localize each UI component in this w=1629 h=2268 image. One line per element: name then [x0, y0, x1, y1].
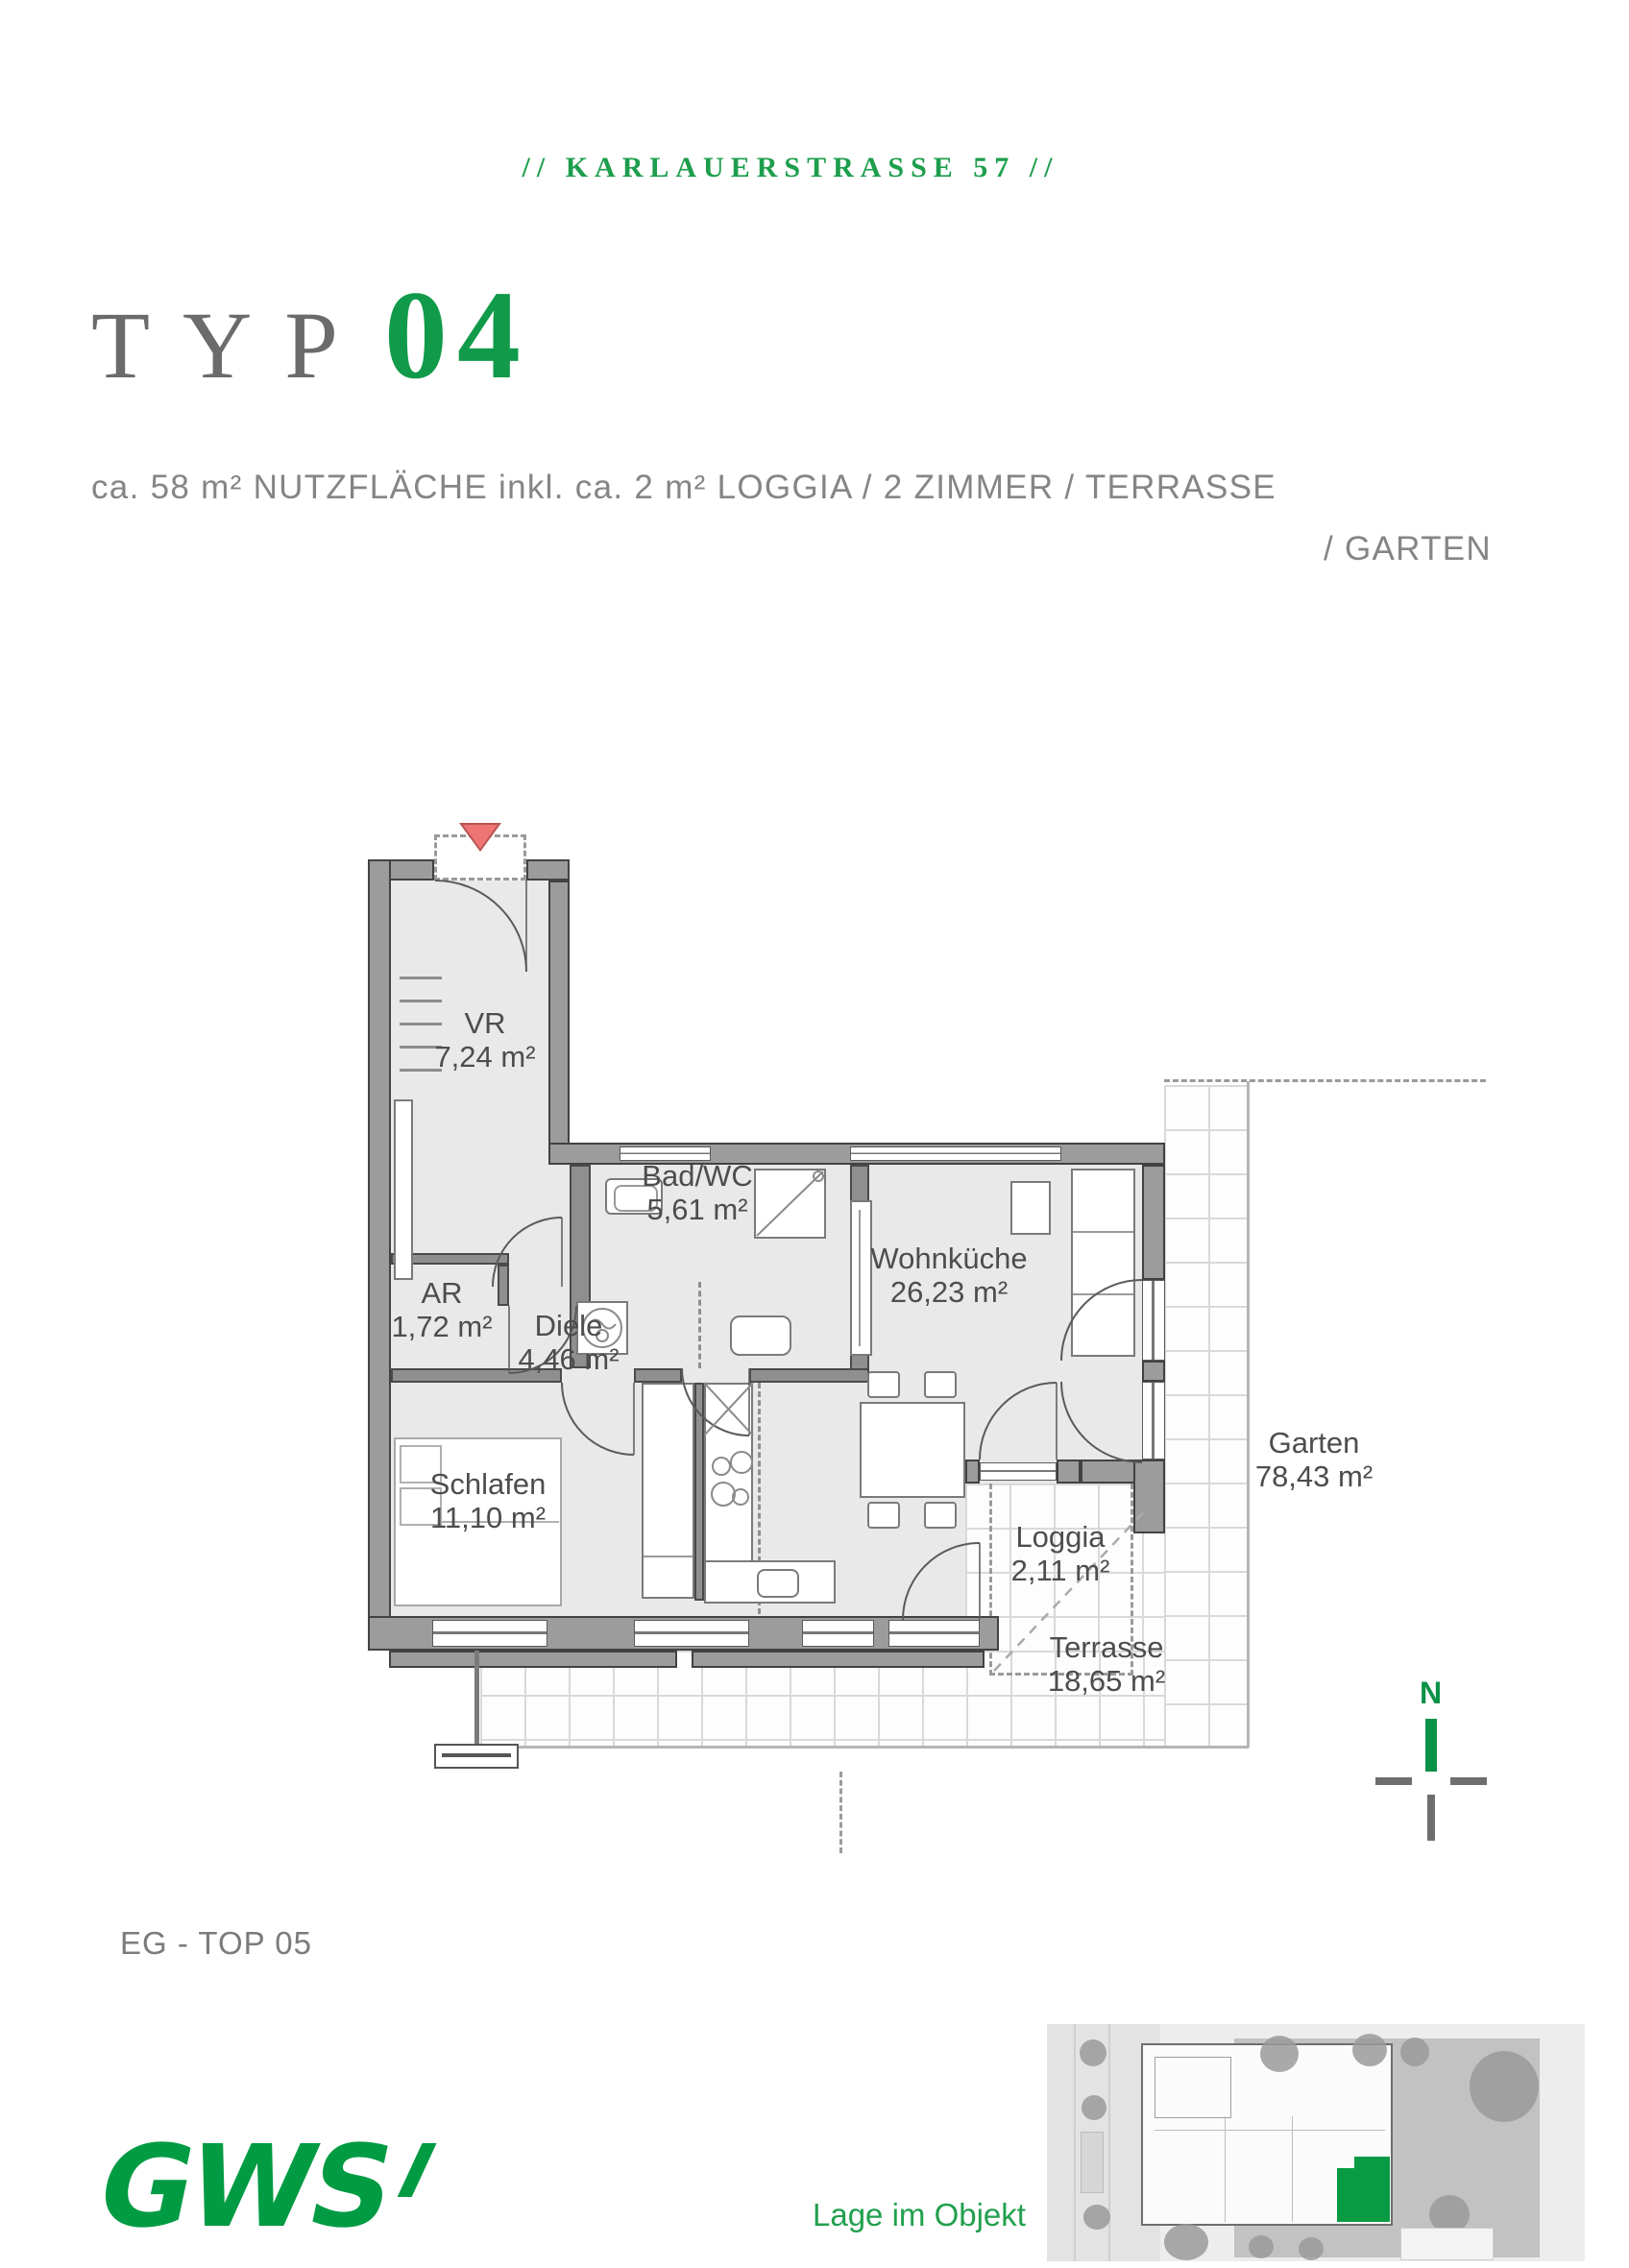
site-building-wing: [1155, 2057, 1231, 2118]
tree-icon: [1299, 2237, 1324, 2260]
site-path: [1400, 2228, 1494, 2260]
site-map-caption: Lage im Objekt: [813, 2197, 1026, 2233]
tree-icon: [1249, 2235, 1274, 2258]
room-label-diele: Diele4,46 m²: [518, 1309, 619, 1376]
tree-icon: [1164, 2224, 1208, 2260]
tree-icon: [1080, 2039, 1106, 2066]
site-road-line-1: [1074, 2024, 1076, 2261]
tree-icon: [1400, 2038, 1429, 2066]
title-row: TYP 04: [91, 261, 530, 408]
site-building-line-1: [1155, 2130, 1385, 2131]
room-label-vr: VR7,24 m²: [434, 1006, 535, 1074]
compass-west-tick: [1375, 1777, 1412, 1785]
compass-needle-icon: [1425, 1719, 1437, 1772]
tree-icon: [1082, 2095, 1106, 2120]
compass-east-tick: [1450, 1777, 1487, 1785]
site-building-line-3: [1292, 2116, 1293, 2222]
floor-plan: VR7,24 m² Bad/WC5,61 m² AR1,72 m² Diele4…: [365, 821, 1498, 1858]
room-label-garten: Garten78,43 m²: [1255, 1426, 1373, 1493]
type-number: 04: [384, 261, 530, 408]
room-label-wohnkueche: Wohnküche26,23 m²: [870, 1242, 1027, 1309]
site-unit-highlight-step: [1354, 2157, 1390, 2170]
tree-icon: [1470, 2051, 1539, 2122]
floorplan-sheet: { "header": { "street": "// KARLAUERSTRA…: [0, 0, 1629, 2268]
compass-north-label: N: [1420, 1676, 1442, 1711]
gws-logo: GWS: [86, 2120, 434, 2253]
type-label: TYP: [91, 290, 371, 400]
room-label-loggia: Loggia2,11 m²: [1011, 1520, 1110, 1587]
room-label-bad: Bad/WC5,61 m²: [642, 1159, 752, 1226]
subtitle-line2: / GARTEN: [1324, 530, 1492, 568]
room-label-ar: AR1,72 m²: [391, 1276, 492, 1343]
room-label-terrasse: Terrasse18,65 m²: [1048, 1630, 1165, 1698]
site-building-line-2: [1225, 2116, 1226, 2222]
logo-prime-icon: [398, 2143, 437, 2197]
site-map: [1047, 2024, 1585, 2261]
tree-icon: [1352, 2034, 1387, 2066]
site-road-island: [1081, 2132, 1104, 2193]
tree-icon: [1260, 2036, 1299, 2072]
unit-label: EG - TOP 05: [120, 1925, 312, 1962]
site-road-line-2: [1108, 2024, 1110, 2261]
street-header: // KARLAUERSTRASSE 57 //: [522, 152, 1059, 184]
site-unit-highlight: [1337, 2168, 1390, 2222]
room-label-schlafen: Schlafen11,10 m²: [430, 1467, 547, 1534]
compass-south-tick: [1427, 1795, 1435, 1841]
tree-icon: [1083, 2205, 1110, 2230]
subtitle-line1: ca. 58 m² NUTZFLÄCHE inkl. ca. 2 m² LOGG…: [91, 469, 1276, 507]
